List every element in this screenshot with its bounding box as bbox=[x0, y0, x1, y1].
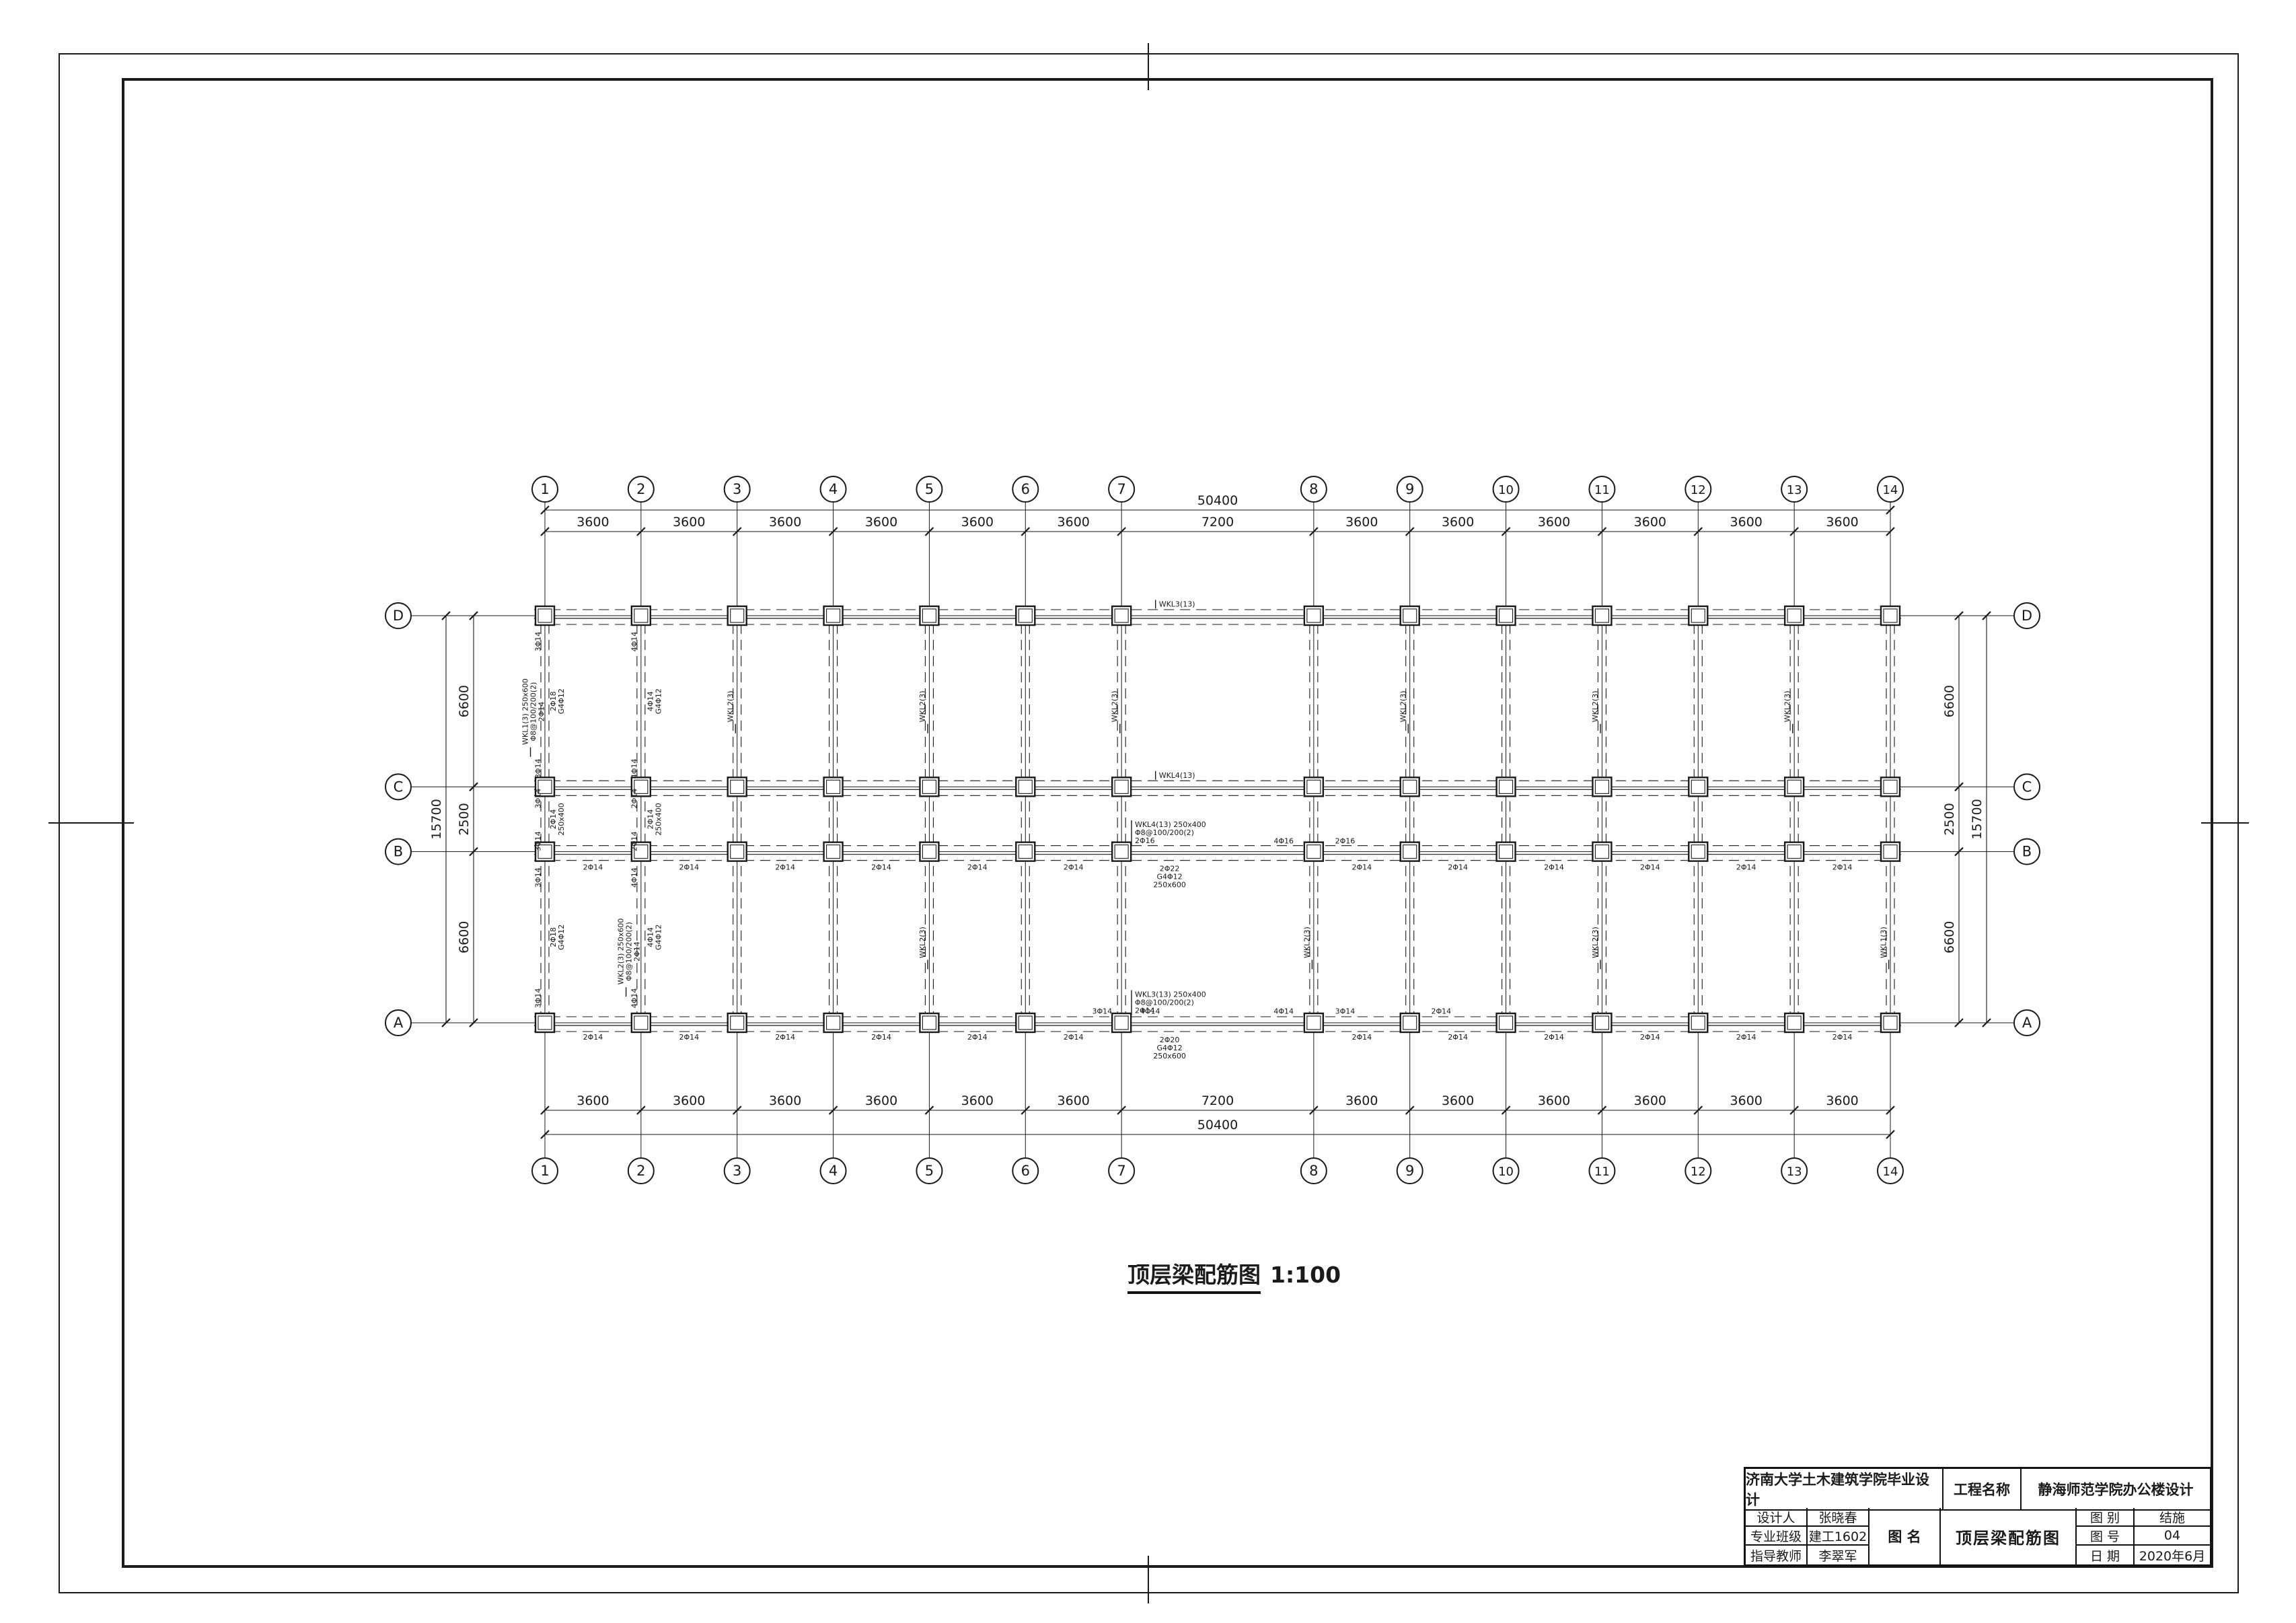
dim-span-bottom: 3600 bbox=[865, 1093, 897, 1108]
beam-annotation: G4Φ12 bbox=[654, 925, 663, 950]
axis-bubble-label: 11 bbox=[1594, 1165, 1610, 1179]
beam-annotation: 2Φ16 bbox=[1335, 836, 1356, 845]
axis-bubble-label: 14 bbox=[1883, 483, 1898, 497]
axis-bubble-label: 4 bbox=[829, 481, 838, 497]
beam-annotation: 4Φ16 bbox=[1273, 836, 1294, 845]
axis-bubble-label: D bbox=[2022, 608, 2032, 624]
caption-scale: 1:100 bbox=[1270, 1262, 1341, 1288]
axis-bubble-label: B bbox=[394, 844, 403, 860]
axis-bubble-label: 5 bbox=[925, 1163, 934, 1179]
axis-bubble-label: 11 bbox=[1594, 483, 1610, 497]
span-rebar-label: 2Φ14 bbox=[679, 1033, 699, 1042]
span-rebar-label: 2Φ14 bbox=[1640, 1033, 1660, 1042]
axis-bubble-label: 14 bbox=[1883, 1165, 1898, 1179]
plan-svg: 5040036003600360036003600360072003600360… bbox=[0, 0, 2296, 1623]
span-rebar-label: 2Φ14 bbox=[1064, 1033, 1084, 1042]
span-rebar-label: 2Φ14 bbox=[967, 863, 988, 872]
dim-span-bottom: 3600 bbox=[1345, 1093, 1378, 1108]
designer-label: 设计人 bbox=[1746, 1508, 1808, 1527]
dim-span-bottom: 3600 bbox=[1058, 1093, 1090, 1108]
dim-span-right: 2500 bbox=[1942, 803, 1957, 835]
beam-annotation: 4Φ14 bbox=[630, 632, 638, 652]
dim-span-top: 3600 bbox=[673, 515, 705, 530]
span-rebar-label: 2Φ14 bbox=[967, 1033, 988, 1042]
beam-annotation: 2Φ14 bbox=[538, 702, 546, 722]
beam-annotation: 250x400 bbox=[557, 803, 566, 836]
dim-span-right: 6600 bbox=[1942, 685, 1957, 717]
dim-total-top: 50400 bbox=[1197, 493, 1238, 508]
axis-bubble-label: 2 bbox=[636, 481, 645, 497]
span-rebar-label: 2Φ14 bbox=[775, 1033, 795, 1042]
sheet-type-label: 图 别 bbox=[2077, 1508, 2135, 1527]
project-label: 工程名称 bbox=[1943, 1469, 2022, 1511]
beam-annotation: WKL2(3) bbox=[1302, 927, 1311, 958]
beam-annotation: WKL2(3) bbox=[918, 927, 927, 958]
span-rebar-label: 2Φ14 bbox=[1736, 863, 1756, 872]
dim-span-right: 6600 bbox=[1942, 921, 1957, 953]
sheet-type-value: 结施 bbox=[2135, 1508, 2210, 1527]
axis-bubble-label: A bbox=[2022, 1015, 2032, 1031]
dim-span-bottom: 3600 bbox=[769, 1093, 801, 1108]
axis-bubble-label: B bbox=[2022, 844, 2032, 860]
university-name: 济南大学土木建筑学院毕业设计 bbox=[1746, 1469, 1943, 1511]
dim-span-top: 3600 bbox=[865, 515, 897, 530]
beam-annotation: 4Φ14 bbox=[630, 759, 638, 779]
title-block: 济南大学土木建筑学院毕业设计 工程名称 静海师范学院办公楼设计 设计人 张晓春 … bbox=[1744, 1467, 2212, 1566]
dim-span-left: 6600 bbox=[457, 685, 472, 717]
class-label: 专业班级 bbox=[1746, 1527, 1808, 1546]
dim-total-right: 15700 bbox=[1970, 799, 1985, 839]
axis-bubble-label: C bbox=[394, 779, 404, 795]
axis-bubble-label: 12 bbox=[1691, 1165, 1706, 1179]
span-rebar-label: 2Φ14 bbox=[583, 863, 603, 872]
beam-annotation: WKL2(3) bbox=[918, 690, 927, 722]
span-rebar-label: 2Φ14 bbox=[1640, 863, 1660, 872]
beam-annotation: 2Φ14 bbox=[1431, 1007, 1451, 1016]
beam-annotation: 250x600 bbox=[1153, 1052, 1186, 1060]
beam-annotation: 3Φ14 bbox=[534, 831, 543, 851]
axis-bubble-label: 3 bbox=[733, 481, 741, 497]
beam-annotation: 3Φ14 bbox=[1335, 1007, 1356, 1016]
axis-bubble-label: 2 bbox=[636, 1163, 645, 1179]
beam-annotation: WKL2(3) bbox=[1111, 690, 1119, 722]
axis-bubble-label: 1 bbox=[540, 1163, 549, 1179]
span-rebar-label: 2Φ14 bbox=[871, 1033, 891, 1042]
sheet-no-value: 04 bbox=[2135, 1527, 2210, 1546]
beam-annotation: 3Φ14 bbox=[534, 759, 543, 779]
dim-span-top: 3600 bbox=[769, 515, 801, 530]
beam-annotation: WKL2(3) bbox=[726, 690, 735, 722]
span-rebar-label: 2Φ14 bbox=[679, 863, 699, 872]
beam-annotation: 3Φ14 bbox=[534, 789, 543, 809]
span-rebar-label: 2Φ14 bbox=[1832, 863, 1853, 872]
beam-annotation: 2Φ14 bbox=[630, 789, 638, 809]
project-name: 静海师范学院办公楼设计 bbox=[2022, 1469, 2210, 1511]
axis-bubble-label: A bbox=[394, 1015, 404, 1031]
beam-annotation: WKL2(3) bbox=[1591, 690, 1600, 722]
axis-bubble-label: C bbox=[2022, 779, 2032, 795]
axis-bubble-label: 1 bbox=[540, 481, 549, 497]
span-rebar-label: 2Φ14 bbox=[775, 863, 795, 872]
axis-bubble-label: 13 bbox=[1787, 1165, 1802, 1179]
beam-annotation: 2Φ14 bbox=[633, 941, 642, 962]
dim-span-bottom: 3600 bbox=[1538, 1093, 1570, 1108]
dim-span-left: 6600 bbox=[457, 921, 472, 953]
beam-annotation: 3Φ14 bbox=[534, 988, 543, 1009]
beam-annotation: 4Φ14 bbox=[1140, 1007, 1160, 1016]
axis-bubble-label: 3 bbox=[733, 1163, 741, 1179]
span-rebar-label: 2Φ14 bbox=[583, 1033, 603, 1042]
designer-value: 张晓春 bbox=[1808, 1508, 1869, 1527]
beam-annotation: WKL4(13) bbox=[1159, 771, 1195, 780]
beam-annotation: G4Φ12 bbox=[654, 688, 663, 714]
caption-title: 顶层梁配筋图 bbox=[1127, 1257, 1261, 1294]
advisor-label: 指导教师 bbox=[1746, 1546, 1808, 1564]
dim-span-top: 3600 bbox=[1538, 515, 1570, 530]
beam-annotation: G4Φ12 bbox=[557, 925, 566, 950]
dim-span-top: 3600 bbox=[1826, 515, 1858, 530]
dim-span-bottom: 3600 bbox=[1442, 1093, 1474, 1108]
axis-bubble-label: 10 bbox=[1498, 1165, 1514, 1179]
dim-span-top: 3600 bbox=[1442, 515, 1474, 530]
dim-total-bottom: 50400 bbox=[1197, 1118, 1238, 1132]
class-value: 建工1602 bbox=[1808, 1527, 1869, 1546]
beam-annotation: 2Φ16 bbox=[1135, 836, 1155, 845]
beam-annotation: 3Φ14 bbox=[534, 867, 543, 888]
dim-span-bottom: 3600 bbox=[1826, 1093, 1858, 1108]
dim-span-top: 3600 bbox=[1345, 515, 1378, 530]
beam-annotation: 4Φ14 bbox=[630, 867, 638, 888]
dim-span-left: 2500 bbox=[457, 803, 472, 835]
span-rebar-label: 2Φ14 bbox=[1832, 1033, 1853, 1042]
axis-bubble-label: D bbox=[393, 608, 404, 624]
dim-span-top: 3600 bbox=[1634, 515, 1666, 530]
axis-bubble-label: 12 bbox=[1691, 483, 1706, 497]
dim-span-bottom: 3600 bbox=[961, 1093, 994, 1108]
drawing-name-label: 图 名 bbox=[1869, 1508, 1941, 1564]
axis-bubble-label: 6 bbox=[1021, 481, 1030, 497]
beam-annotation: 250x600 bbox=[1153, 881, 1186, 890]
beam-annotation: WKL1(3) bbox=[1880, 927, 1888, 958]
dim-span-top: 3600 bbox=[577, 515, 609, 530]
dim-span-bottom: 3600 bbox=[577, 1093, 609, 1108]
beam-annotation: WKL2(3) bbox=[1783, 690, 1792, 722]
dim-span-top: 3600 bbox=[961, 515, 994, 530]
beam-annotation: WKL3(13) bbox=[1159, 600, 1195, 609]
span-rebar-label: 2Φ14 bbox=[1544, 1033, 1564, 1042]
dim-span-top: 3600 bbox=[1730, 515, 1763, 530]
beam-annotation: 4Φ14 bbox=[630, 988, 638, 1009]
dim-span-bottom: 3600 bbox=[1634, 1093, 1666, 1108]
beam-annotation: G4Φ12 bbox=[557, 688, 566, 714]
axis-bubble-label: 8 bbox=[1309, 481, 1318, 497]
span-rebar-label: 2Φ14 bbox=[1544, 863, 1564, 872]
axis-bubble-label: 7 bbox=[1117, 481, 1125, 497]
span-rebar-label: 2Φ14 bbox=[1351, 863, 1372, 872]
drawing-name: 顶层梁配筋图 bbox=[1941, 1508, 2077, 1564]
dim-span-bottom: 3600 bbox=[1730, 1093, 1763, 1108]
axis-bubble-label: 7 bbox=[1117, 1163, 1125, 1179]
beam-annotation: 3Φ14 bbox=[534, 632, 543, 652]
dim-total-left: 15700 bbox=[429, 799, 444, 839]
span-rebar-label: 2Φ14 bbox=[1736, 1033, 1756, 1042]
beam-annotation: WKL2(3) bbox=[1399, 690, 1407, 722]
beam-annotation: WKL2(3) bbox=[1591, 927, 1600, 958]
axis-bubble-label: 10 bbox=[1498, 483, 1514, 497]
axis-bubble-label: 6 bbox=[1021, 1163, 1030, 1179]
axis-bubble-label: 9 bbox=[1405, 1163, 1414, 1179]
axis-bubble-label: 5 bbox=[925, 481, 934, 497]
beam-annotation: 4Φ14 bbox=[1273, 1007, 1294, 1016]
span-rebar-label: 2Φ14 bbox=[1064, 863, 1084, 872]
axis-bubble-label: 4 bbox=[829, 1163, 838, 1179]
beam-annotation: 250x400 bbox=[654, 803, 663, 836]
sheet-no-label: 图 号 bbox=[2077, 1527, 2135, 1546]
advisor-value: 李翠军 bbox=[1808, 1546, 1869, 1564]
dim-span-bottom: 7200 bbox=[1201, 1093, 1234, 1108]
span-rebar-label: 2Φ14 bbox=[1351, 1033, 1372, 1042]
dim-span-top: 7200 bbox=[1201, 515, 1234, 530]
drawing-caption: 顶层梁配筋图1:100 bbox=[1127, 1257, 1341, 1294]
date-value: 2020年6月 bbox=[2135, 1546, 2210, 1564]
span-rebar-label: 2Φ14 bbox=[1448, 863, 1468, 872]
span-rebar-label: 2Φ14 bbox=[871, 863, 891, 872]
beam-annotation: 3Φ14 bbox=[1092, 1007, 1112, 1016]
date-label: 日 期 bbox=[2077, 1546, 2135, 1564]
axis-bubble-label: 8 bbox=[1309, 1163, 1318, 1179]
axis-bubble-label: 9 bbox=[1405, 481, 1414, 497]
drawing-sheet: 5040036003600360036003600360072003600360… bbox=[0, 0, 2296, 1623]
beam-annotation: 2Φ14 bbox=[630, 831, 638, 851]
axis-bubble-label: 13 bbox=[1787, 483, 1802, 497]
span-rebar-label: 2Φ14 bbox=[1448, 1033, 1468, 1042]
dim-span-bottom: 3600 bbox=[673, 1093, 705, 1108]
dim-span-top: 3600 bbox=[1058, 515, 1090, 530]
